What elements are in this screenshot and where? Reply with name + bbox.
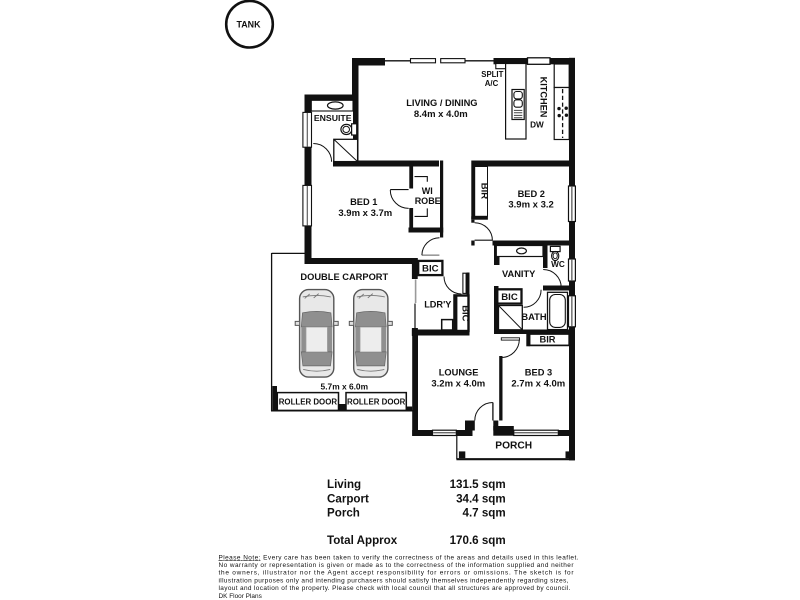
svg-text:ENSUITE: ENSUITE [314,113,352,123]
svg-text:LOUNGE: LOUNGE [439,367,479,377]
svg-text:ROLLER DOOR: ROLLER DOOR [279,398,338,407]
svg-text:illustration purposes only and: illustration purposes only and intending… [219,577,569,584]
svg-text:BED 1: BED 1 [350,197,377,207]
svg-text:LIVING / DINING: LIVING / DINING [406,98,477,108]
svg-text:LDR'Y: LDR'Y [424,300,451,310]
svg-text:DK Floor Plans: DK Floor Plans [219,593,262,600]
svg-text:Living: Living [327,478,361,491]
svg-text:BATH: BATH [521,312,546,322]
svg-text:A/C: A/C [485,79,499,88]
svg-text:131.5 sqm: 131.5 sqm [450,478,506,491]
svg-text:3.9m x 3.7m: 3.9m x 3.7m [338,208,392,219]
svg-text:34.4 sqm: 34.4 sqm [456,492,506,505]
svg-text:4.7 sqm: 4.7 sqm [463,506,506,519]
svg-text:TANK: TANK [237,19,262,29]
svg-text:No warranty or representation: No warranty or representation is given o… [219,562,575,569]
svg-text:SPLIT: SPLIT [481,70,503,79]
svg-text:3.2m x 4.0m: 3.2m x 4.0m [431,379,485,390]
svg-text:3.9m x 3.2: 3.9m x 3.2 [508,200,553,211]
svg-text:170.6 sqm: 170.6 sqm [450,534,506,547]
svg-text:layout and location of the pro: layout and location of the property. Ple… [219,585,571,592]
svg-text:Porch: Porch [327,506,360,519]
svg-text:WC: WC [551,260,565,269]
svg-text:the owners, illustrator nor: the owners, illustrator nor the Agent ac… [219,570,575,577]
svg-text:BIC: BIC [501,292,518,303]
svg-text:BED 2: BED 2 [518,189,545,199]
svg-text:DW: DW [530,121,544,130]
svg-text:PORCH: PORCH [495,440,532,451]
svg-text:WI: WI [422,186,433,196]
svg-text:8.4m x 4.0m: 8.4m x 4.0m [414,109,468,120]
svg-text:Please Note: Every care has: Please Note: Every care has been taken t… [219,554,579,561]
svg-text:VANITY: VANITY [502,269,536,279]
svg-text:ROLLER DOOR: ROLLER DOOR [347,398,406,407]
svg-text:BIC: BIC [422,264,439,275]
svg-text:BIR: BIR [539,335,555,345]
svg-text:BIR: BIR [478,183,489,200]
svg-text:DOUBLE CARPORT: DOUBLE CARPORT [300,272,388,282]
svg-text:2.7m x 4.0m: 2.7m x 4.0m [511,379,565,390]
svg-text:KITCHEN: KITCHEN [538,77,548,118]
svg-text:BIC: BIC [461,305,472,321]
svg-text:5.7m x 6.0m: 5.7m x 6.0m [321,382,369,392]
svg-text:Total Approx: Total Approx [327,534,398,547]
svg-text:BED 3: BED 3 [525,367,552,377]
svg-text:ROBE: ROBE [415,196,441,206]
svg-text:Carport: Carport [327,492,369,505]
